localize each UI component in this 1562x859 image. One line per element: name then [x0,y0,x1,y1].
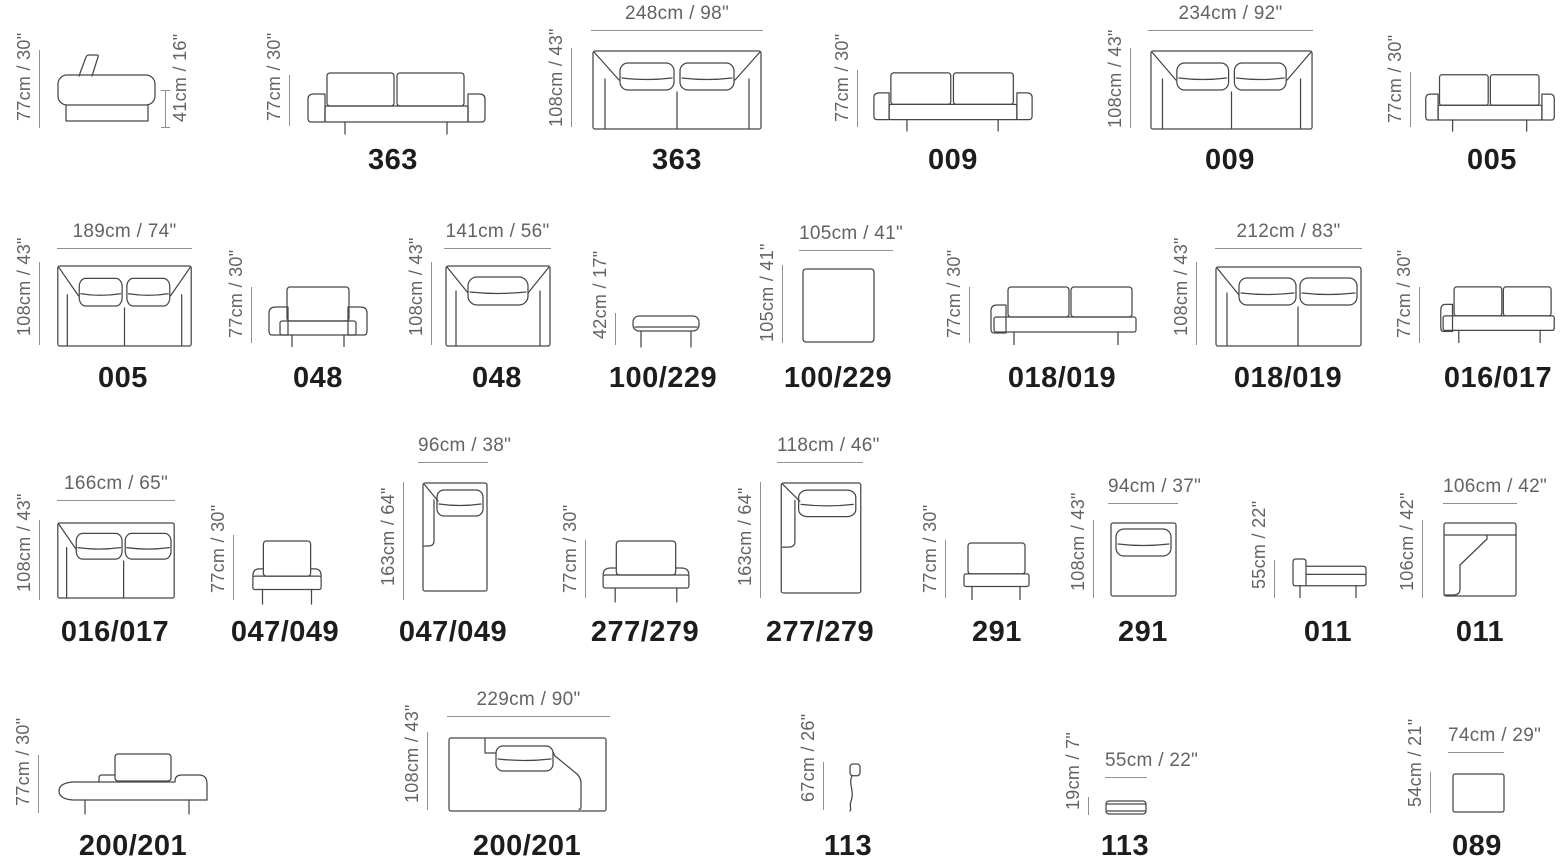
sofa-top-drawing [57,265,192,347]
depth-dimension: 108cm / 43" [14,230,38,343]
sofa-top-drawing [1215,266,1362,347]
model-number: 005 [1392,146,1562,174]
model-number: 009 [853,146,1053,174]
dimension-line [38,755,39,813]
depth-dimension: 108cm / 43" [1105,48,1129,128]
width-dimension: 105cm / 41" [799,223,893,251]
width-dimension: 189cm / 74" [57,221,192,249]
width-dimension: 55cm / 22" [1105,750,1147,778]
model-number: 048 [218,364,418,392]
model-number: 100/229 [738,364,938,392]
spec-sheet: 77cm / 30" 41cm / 16" 77cm / 30" 363 248… [0,0,1562,859]
module-front-drawing [252,540,322,605]
depth-dimension: 106cm / 42" [1397,487,1421,597]
model-number: 291 [1043,618,1243,646]
dimension-line [39,262,40,345]
model-number: 363 [293,146,493,174]
sofa-top-drawing [57,522,175,599]
model-number: 113 [748,832,948,859]
dimension-line [760,482,761,598]
dimension-line [782,265,783,343]
model-number: 100/229 [563,364,763,392]
dimension-line [571,48,572,127]
depth-dimension: 108cm / 43" [14,487,38,599]
seat-height-dimension-line [165,90,166,128]
height-dimension: 77cm / 30" [13,710,37,813]
dimension-line [427,732,428,810]
dimension-line [945,540,946,598]
depth-dimension: 108cm / 43" [402,700,426,808]
dimension-line [1430,772,1431,813]
cushion-front-drawing [1105,800,1147,815]
width-dimension: 106cm / 42" [1443,476,1517,504]
dimension-line [39,50,40,128]
width-dimension: 248cm / 98" [591,3,763,31]
model-number: 089 [1377,832,1562,859]
dimension-line [1274,560,1275,598]
height-dimension: 77cm / 30" [264,28,288,126]
sofa-front-drawing [307,70,486,135]
model-number: 016/017 [1398,364,1562,392]
dimension-line [1088,797,1089,815]
height-dimension: 77cm / 30" [226,245,250,343]
height-dimension: 77cm / 30" [560,500,584,598]
sofa-front-drawing [873,70,1033,132]
width-dimension: 212cm / 83" [1215,221,1362,249]
armless-front-drawing [963,542,1030,600]
width-dimension: 74cm / 29" [1448,725,1504,753]
dimension-line [251,287,252,343]
model-number: 018/019 [1188,364,1388,392]
dimension-line [585,540,586,598]
depth-dimension: 105cm / 41" [757,242,781,343]
model-number: 200/201 [427,832,627,859]
height-dimension: 67cm / 26" [798,708,822,808]
model-number: 277/279 [720,618,920,646]
height-dimension: 42cm / 17" [590,250,614,340]
module-front-drawing [602,540,690,603]
module-top-drawing [1110,522,1177,597]
depth-dimension: 54cm / 21" [1405,717,1429,809]
depth-dimension: 108cm / 43" [1068,487,1092,597]
width-dimension: 166cm / 65" [57,473,175,501]
model-number: 047/049 [353,618,553,646]
depth-dimension: 163cm / 64" [378,477,402,597]
dimension-line [1422,520,1423,598]
seat-height-dimension: 41cm / 16" [170,33,194,123]
dimension-line [615,313,616,345]
sofa-front-drawing [1440,285,1555,343]
dimension-line [233,535,234,600]
depth-dimension: 108cm / 43" [406,230,430,343]
depth-dimension: 108cm / 43" [546,48,570,127]
height-dimension: 77cm / 30" [14,28,38,125]
height-dimension: 77cm / 30" [944,245,968,343]
width-dimension: 118cm / 46" [777,435,863,463]
sofa-side-drawing [57,54,157,128]
chaise-top-drawing [422,482,488,592]
dimension-line [1130,48,1131,128]
pouf-top-drawing [1452,773,1505,813]
armchair-top-drawing [445,265,551,347]
dimension-line [857,70,858,127]
width-dimension: 234cm / 92" [1148,3,1313,31]
model-number: 005 [23,364,223,392]
daybed-front-drawing [58,753,214,815]
width-dimension: 96cm / 38" [418,435,488,463]
dimension-line [289,75,290,126]
model-number: 113 [1025,832,1225,859]
dimension-line [39,520,40,600]
dimension-line [823,762,824,810]
depth-dimension: 163cm / 64" [735,477,759,597]
dimension-line [1419,287,1420,343]
model-number: 363 [577,146,777,174]
height-dimension: 77cm / 30" [1385,30,1409,127]
ottoman-top-drawing [802,268,875,343]
dimension-line [403,482,404,600]
daybed-top-drawing [448,737,607,812]
sofa-top-drawing [592,50,762,130]
height-dimension: 77cm / 30" [208,500,232,598]
width-dimension: 229cm / 90" [447,689,610,717]
depth-dimension: 108cm / 43" [1171,230,1195,343]
cushion-side-drawing [845,763,861,812]
model-number: 200/201 [33,832,233,859]
model-number: 009 [1130,146,1330,174]
model-number: 011 [1380,618,1562,646]
height-dimension: 77cm / 30" [920,500,944,598]
width-dimension: 94cm / 37" [1108,476,1178,504]
corner-top-drawing [1443,522,1517,597]
height-dimension: 77cm / 30" [1394,245,1418,343]
dimension-line [969,287,970,343]
dimension-line [1196,262,1197,345]
dimension-line [1093,520,1094,598]
model-number: 277/279 [545,618,745,646]
height-dimension: 77cm / 30" [832,28,856,127]
sofa-front-drawing [990,285,1137,345]
dimension-line [1410,72,1411,127]
height-dimension: 55cm / 22" [1249,492,1273,597]
sofa-front-drawing [1425,72,1555,132]
sofa-top-drawing [1150,50,1313,130]
width-dimension: 141cm / 56" [444,221,551,249]
armchair-front-drawing [268,285,368,347]
corner-front-drawing [1292,558,1367,598]
dimension-line [431,262,432,345]
height-dimension: 19cm / 7" [1063,728,1087,813]
ottoman-front-drawing [632,315,700,348]
chaise-top-drawing [780,482,862,594]
model-number: 018/019 [962,364,1162,392]
